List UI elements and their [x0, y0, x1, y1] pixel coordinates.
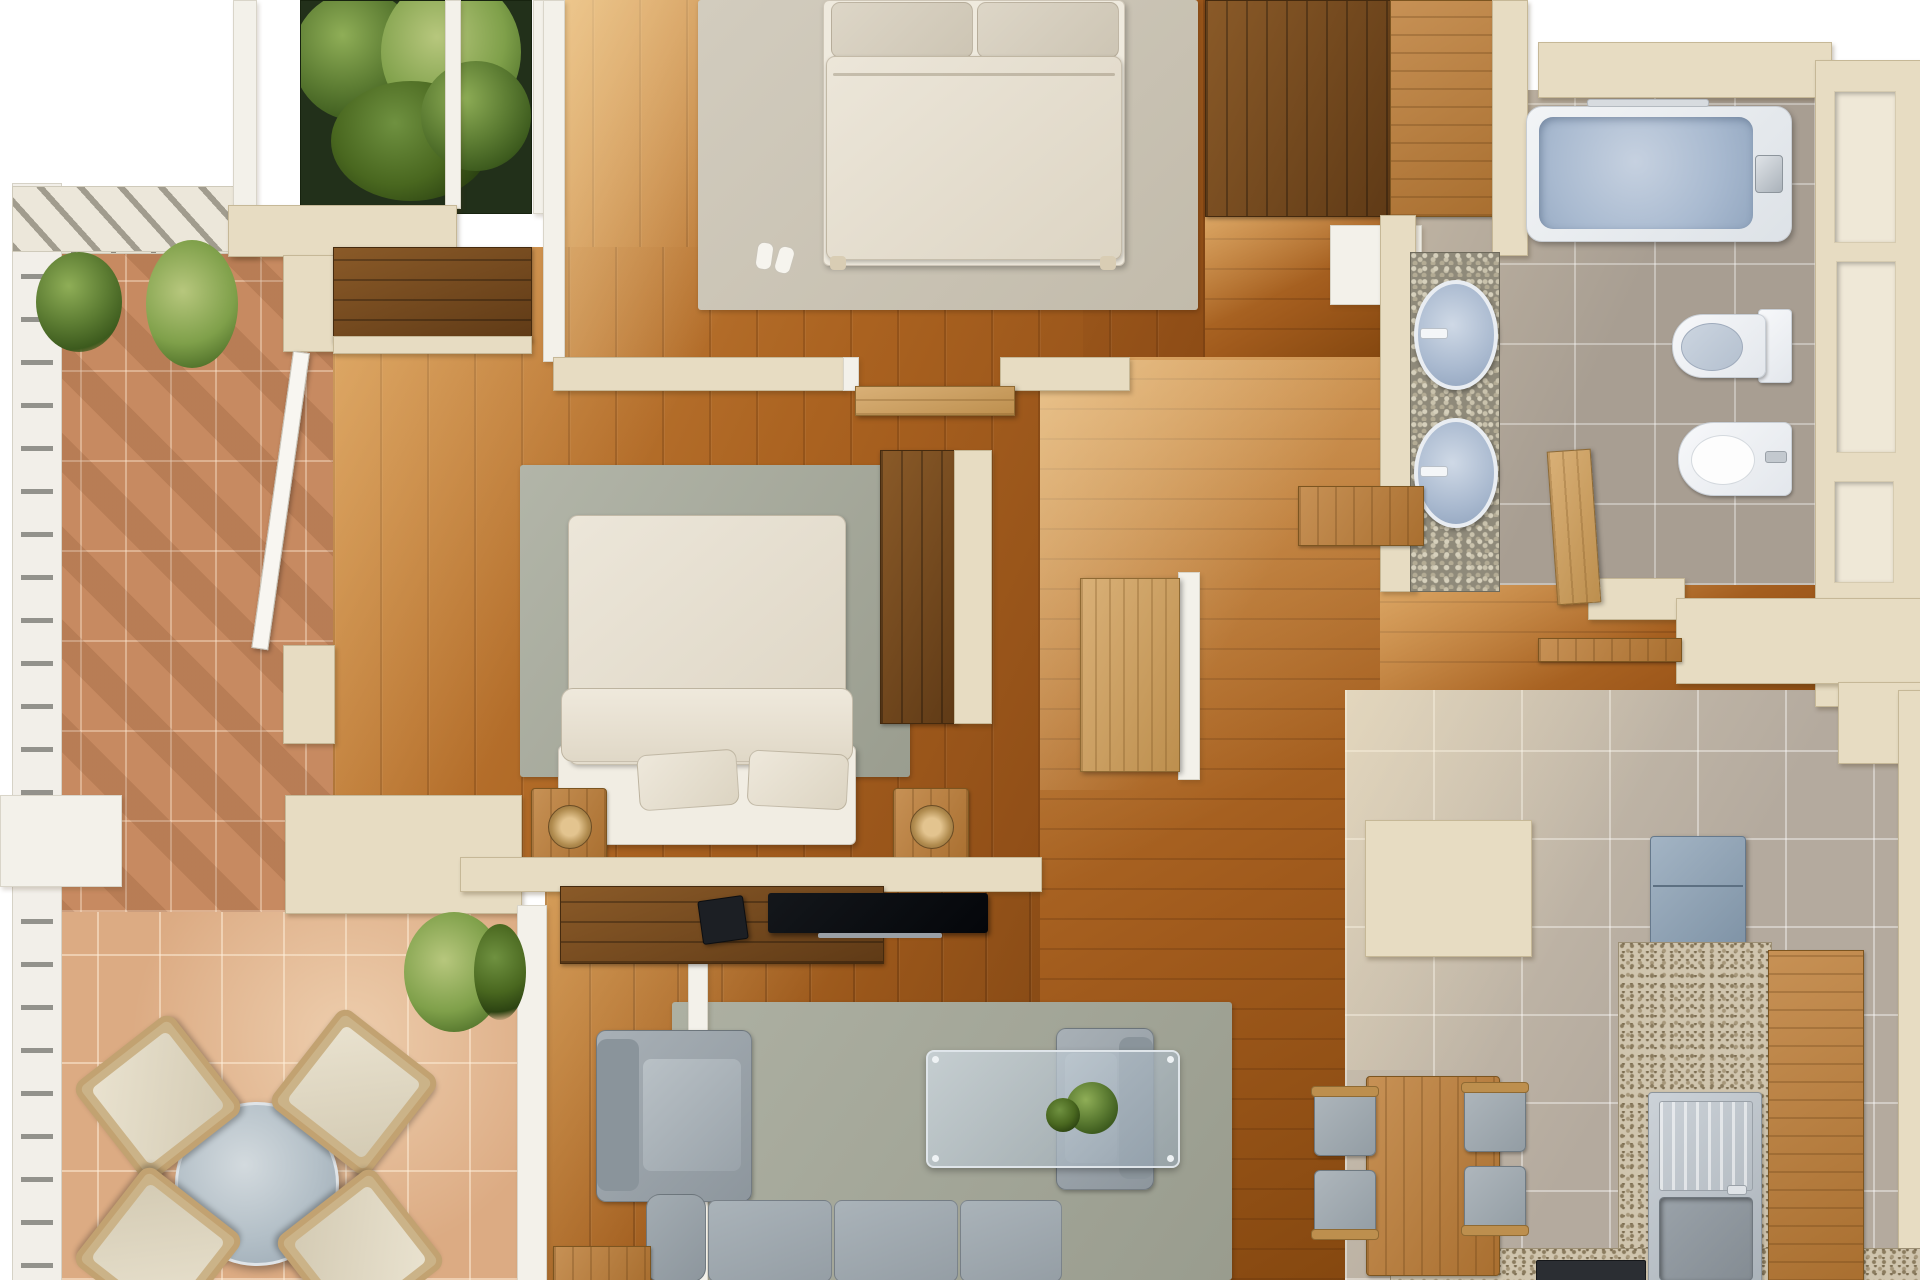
bidet-basin: [1691, 435, 1755, 485]
terrace-plant: [36, 252, 122, 352]
nightstand: [893, 788, 969, 864]
nightstand: [531, 788, 607, 864]
sofa-cushion: [960, 1200, 1062, 1280]
bathtub: [1526, 106, 1792, 242]
refrigerator: [1650, 836, 1746, 948]
bidet-faucet: [1765, 451, 1787, 463]
bed-2-duvet: [568, 515, 846, 765]
railing-post: [445, 0, 461, 209]
bed-2-pillow: [636, 749, 740, 812]
vanity-basin: [1414, 418, 1498, 528]
tv-screen: [768, 893, 988, 933]
bathroom-wall-northwest: [1492, 0, 1528, 256]
railing-rungs: [21, 188, 53, 1277]
bathroom-wall-south: [1588, 578, 1685, 620]
wardrobe-end-panel: [954, 450, 992, 724]
terrace-plant: [146, 240, 238, 368]
dining-chair: [1314, 1170, 1376, 1236]
table-lamp: [548, 805, 592, 849]
wall-bedroom-1-south: [553, 357, 845, 391]
sink-basin: [1659, 1197, 1753, 1280]
drainboard-ribs: [1659, 1101, 1753, 1191]
kitchen-cabinets: [1768, 950, 1864, 1280]
wall-terrace-living: [285, 795, 522, 914]
wall-pillar: [283, 645, 335, 744]
planter-plant: [421, 61, 531, 171]
bed-1-foot: [1100, 256, 1116, 270]
bed-1-pillow: [831, 2, 973, 58]
bedroom-1-wardrobe: [1205, 0, 1392, 217]
bedroom-2-closet-band: [333, 247, 532, 342]
basin-faucet: [1420, 466, 1448, 477]
wall-niche: [1836, 261, 1896, 453]
dining-chair: [1464, 1086, 1526, 1152]
terrace-plant: [474, 924, 526, 1020]
bedroom-2-wardrobe: [880, 450, 958, 724]
sofa-cushion: [708, 1200, 832, 1280]
dining-chair: [1314, 1090, 1376, 1156]
side-table: [553, 1246, 651, 1280]
vanity-basin: [1414, 280, 1498, 390]
sofa-arm: [646, 1194, 706, 1280]
armchair-back: [597, 1039, 639, 1191]
wall-niche: [1834, 481, 1894, 583]
bathroom-ledge: [1538, 638, 1682, 662]
table-leg: [1167, 1155, 1174, 1162]
basin-faucet: [1420, 328, 1448, 339]
wall-bedroom-1-south-east: [1000, 357, 1130, 391]
chair-frame: [1311, 1086, 1379, 1097]
bathroom-wall-north: [1538, 42, 1832, 98]
armchair-seat: [643, 1059, 741, 1171]
bathtub-faucet: [1755, 155, 1783, 193]
closet-trim: [333, 336, 532, 354]
chair-frame: [1461, 1225, 1529, 1236]
media-box: [697, 895, 749, 945]
duvet-fold-line: [833, 73, 1115, 76]
bidet: [1678, 422, 1798, 496]
bedroom-1-window-frame: [543, 0, 565, 362]
kitchen-wall-east: [1898, 690, 1920, 1280]
sofa-cushion: [834, 1200, 958, 1280]
bidet-bowl: [1678, 422, 1792, 496]
bed-1-pillow: [977, 2, 1119, 58]
armchair: [596, 1030, 752, 1202]
table-leg: [932, 1155, 939, 1162]
bathtub-basin: [1539, 117, 1753, 229]
cooktop: [1536, 1260, 1646, 1280]
table-lamp: [910, 805, 954, 849]
wall-terrace-west: [0, 795, 122, 887]
toilet: [1672, 306, 1792, 384]
wall-pillar: [283, 255, 335, 352]
bed-1-foot: [830, 256, 846, 270]
dining-chair: [1464, 1166, 1526, 1232]
table-leg: [932, 1056, 939, 1063]
table-leg: [1167, 1056, 1174, 1063]
tv-stand-bar: [818, 933, 942, 938]
bedroom-2-door-leaf: [1080, 578, 1180, 772]
terrace-railing: [12, 183, 62, 1280]
floor-plan-canvas: [0, 0, 1920, 1280]
sink-unit: [1648, 1092, 1762, 1280]
planter-box: [300, 0, 532, 214]
chair-frame: [1461, 1082, 1529, 1093]
bed-2-pillow: [747, 749, 850, 810]
bedroom-1-closet-2: [1390, 0, 1494, 217]
wall-niche: [1834, 91, 1896, 243]
bathroom-wall-south-east: [1676, 598, 1920, 684]
toilet-seat: [1681, 323, 1743, 371]
kitchen-island-block: [1365, 820, 1532, 957]
sink-faucet: [1727, 1185, 1747, 1195]
grab-bar: [1587, 99, 1709, 107]
bed-1-duvet: [826, 56, 1122, 260]
toilet-bowl: [1672, 314, 1766, 378]
door-jamb: [1178, 572, 1200, 780]
bedroom-1-door-leaf: [855, 386, 1015, 416]
fridge-divider: [1653, 885, 1743, 887]
sofa: [646, 1194, 1062, 1280]
hallway-console-shelf: [1298, 486, 1424, 546]
chair-frame: [1311, 1229, 1379, 1240]
coffee-table-plant: [1046, 1098, 1080, 1132]
